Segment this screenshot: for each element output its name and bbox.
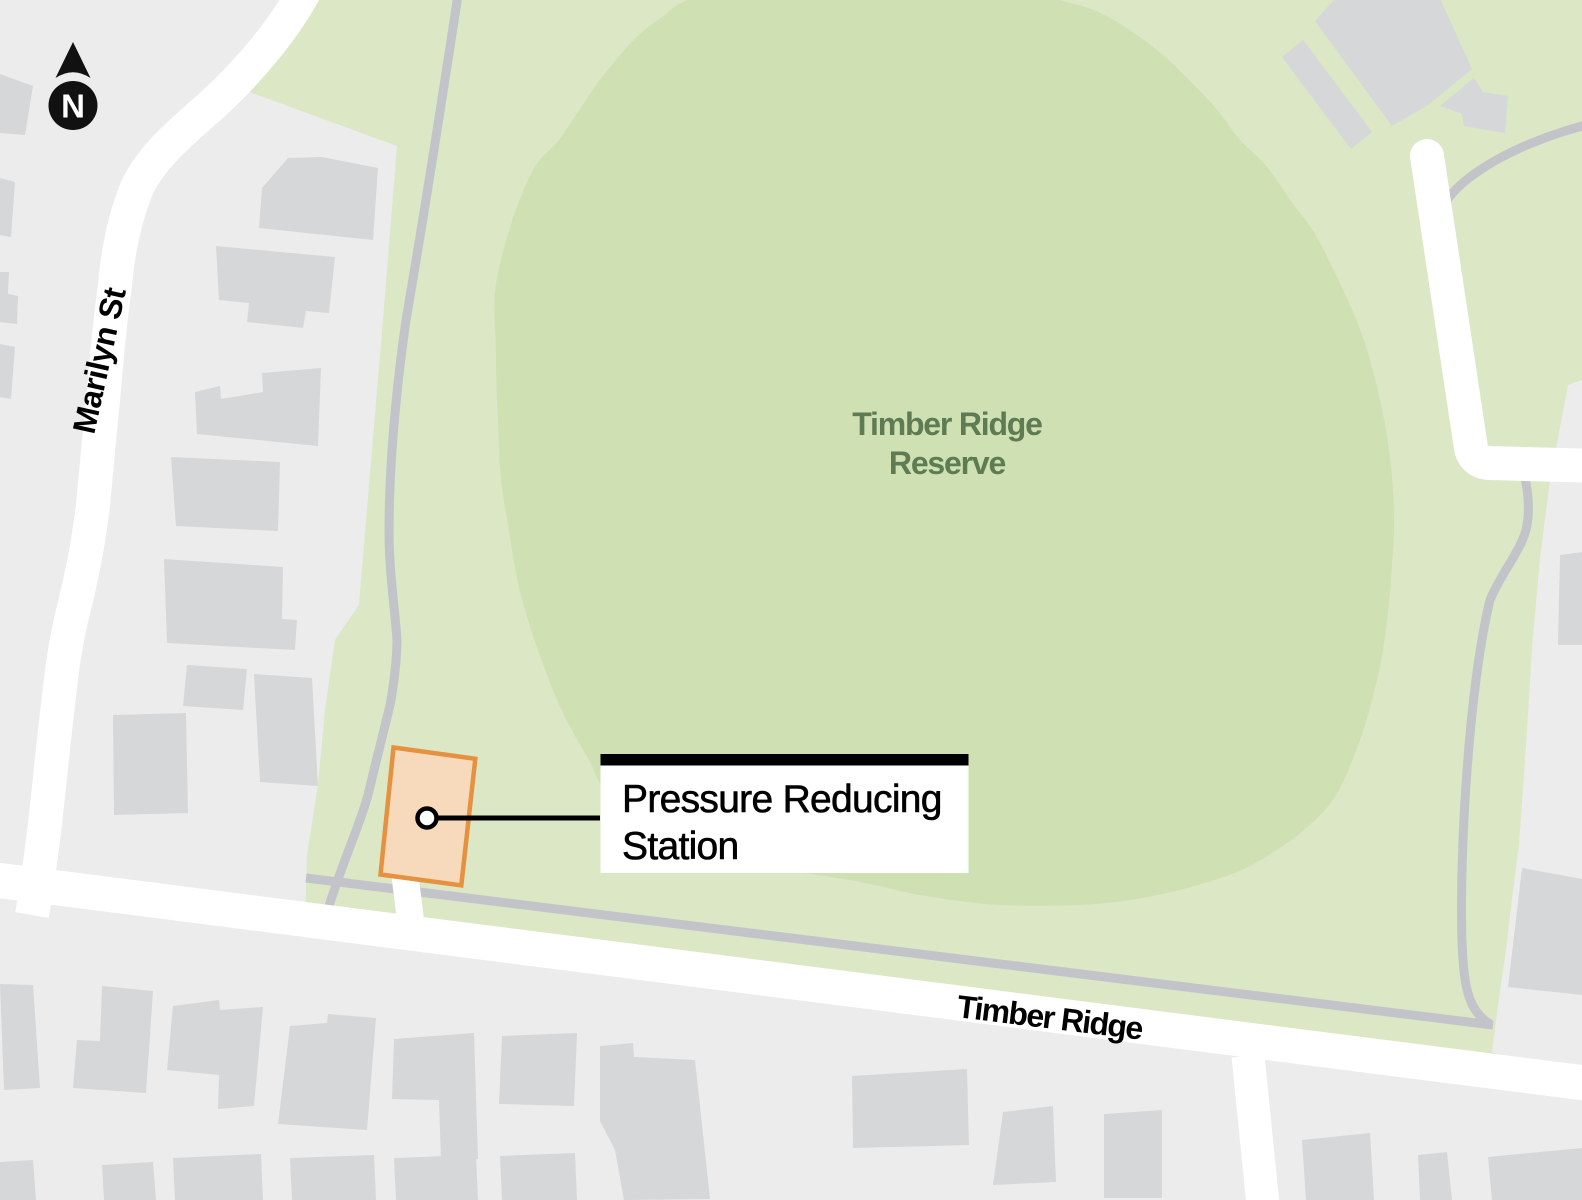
svg-text:Timber Ridge: Timber Ridge <box>852 406 1042 442</box>
svg-text:N: N <box>61 88 85 125</box>
svg-text:Reserve: Reserve <box>889 445 1006 481</box>
svg-text:Station: Station <box>622 825 739 868</box>
svg-text:Pressure Reducing: Pressure Reducing <box>622 778 942 821</box>
